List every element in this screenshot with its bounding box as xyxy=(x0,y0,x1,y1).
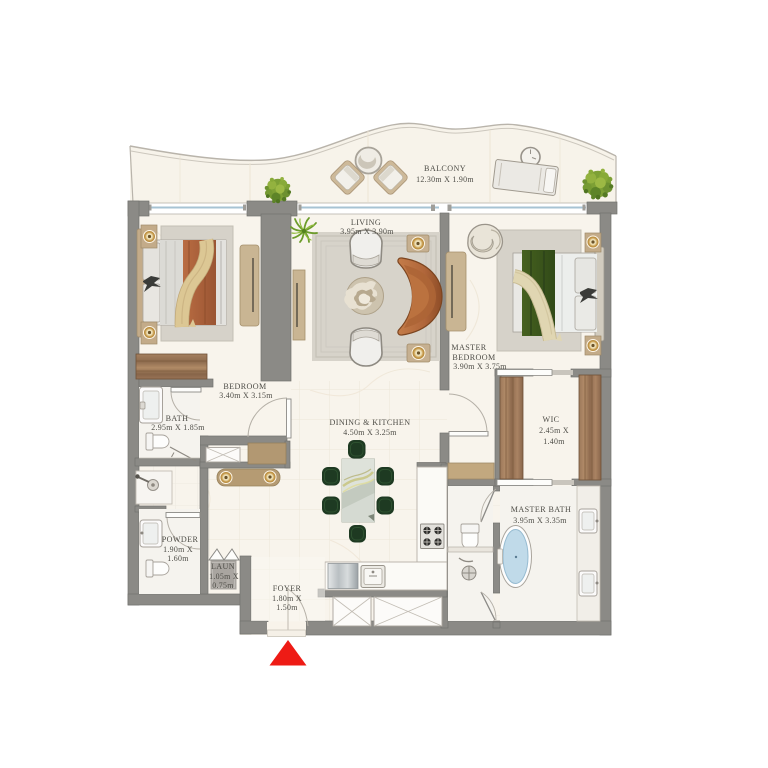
svg-text:2.95m X 1.85m: 2.95m X 1.85m xyxy=(151,423,205,432)
svg-text:POWDER: POWDER xyxy=(162,535,199,544)
svg-text:FOYER: FOYER xyxy=(273,584,302,593)
svg-text:MASTER BATH: MASTER BATH xyxy=(511,505,571,514)
svg-text:4.50m X 3.25m: 4.50m X 3.25m xyxy=(343,428,397,437)
svg-text:3.95m X 3.35m: 3.95m X 3.35m xyxy=(513,516,567,525)
svg-text:MASTER: MASTER xyxy=(451,343,486,352)
svg-text:BEDROOM: BEDROOM xyxy=(452,353,495,362)
svg-text:2.45m X: 2.45m X xyxy=(539,426,569,435)
svg-text:BEDROOM: BEDROOM xyxy=(223,382,266,391)
svg-text:3.95m X 3.90m: 3.95m X 3.90m xyxy=(340,227,394,236)
svg-text:LAUN: LAUN xyxy=(211,562,235,571)
svg-text:DINING & KITCHEN: DINING & KITCHEN xyxy=(329,418,410,427)
svg-text:1.60m: 1.60m xyxy=(167,554,189,563)
svg-text:1.50m: 1.50m xyxy=(276,603,298,612)
svg-text:3.90m X 3.75m: 3.90m X 3.75m xyxy=(453,362,507,371)
svg-text:1.40m: 1.40m xyxy=(543,437,565,446)
svg-text:12.30m X 1.90m: 12.30m X 1.90m xyxy=(416,175,474,184)
svg-text:1.80m X: 1.80m X xyxy=(272,594,302,603)
svg-text:BALCONY: BALCONY xyxy=(424,164,466,173)
svg-text:1.05m X: 1.05m X xyxy=(209,572,239,581)
svg-text:3.40m X 3.15m: 3.40m X 3.15m xyxy=(219,391,273,400)
svg-text:WIC: WIC xyxy=(543,415,560,424)
svg-text:LIVING: LIVING xyxy=(351,218,381,227)
svg-text:BATH: BATH xyxy=(166,414,189,423)
svg-text:0.75m: 0.75m xyxy=(212,581,234,590)
svg-text:1.90m X: 1.90m X xyxy=(163,545,193,554)
